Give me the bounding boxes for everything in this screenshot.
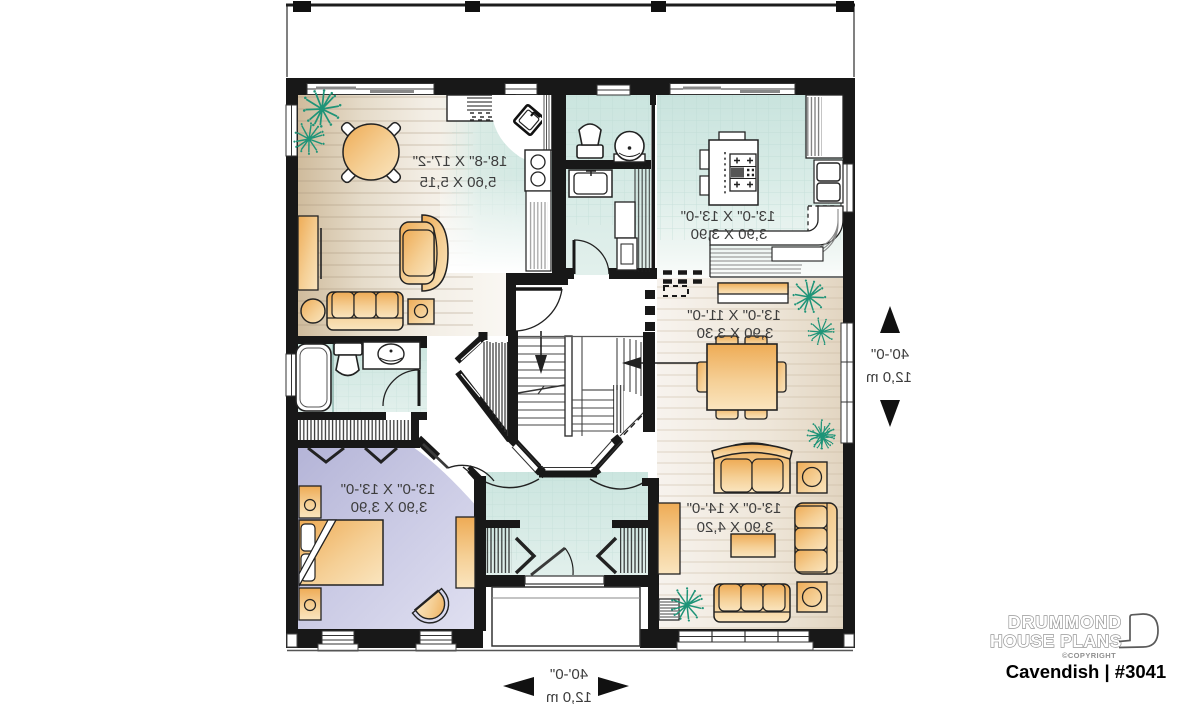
svg-text:HOUSE PLANS: HOUSE PLANS xyxy=(990,631,1122,651)
svg-text:5,60 X 5,15: 5,60 X 5,15 xyxy=(420,174,497,191)
svg-text:DRUMMOND: DRUMMOND xyxy=(1008,612,1122,632)
svg-text:40'-0": 40'-0" xyxy=(871,346,909,363)
svg-text:3,90 X 3,90: 3,90 X 3,90 xyxy=(351,499,428,516)
svg-text:3,90 X 3,30: 3,90 X 3,30 xyxy=(697,325,774,342)
svg-text:13'-0" X 11'-0": 13'-0" X 11'-0" xyxy=(687,307,781,324)
svg-text:40'-0": 40'-0" xyxy=(550,666,588,683)
svg-text:13'-0" X 13'-0": 13'-0" X 13'-0" xyxy=(681,208,776,225)
svg-text:12,0 m: 12,0 m xyxy=(866,369,912,386)
svg-text:3,90 X 4,20: 3,90 X 4,20 xyxy=(697,519,774,536)
svg-text:13'-0" X 13'-0": 13'-0" X 13'-0" xyxy=(341,481,436,498)
svg-text:12,0 m: 12,0 m xyxy=(546,689,592,706)
svg-text:3,90 X 3,90: 3,90 X 3,90 xyxy=(691,226,768,243)
svg-text:©COPYRIGHT: ©COPYRIGHT xyxy=(1062,651,1116,660)
svg-text:18'-8" X 17'-2": 18'-8" X 17'-2" xyxy=(413,153,508,170)
svg-text:Cavendish | #3041: Cavendish | #3041 xyxy=(1006,661,1166,682)
svg-text:13'-0" X 14'-0": 13'-0" X 14'-0" xyxy=(687,500,782,517)
